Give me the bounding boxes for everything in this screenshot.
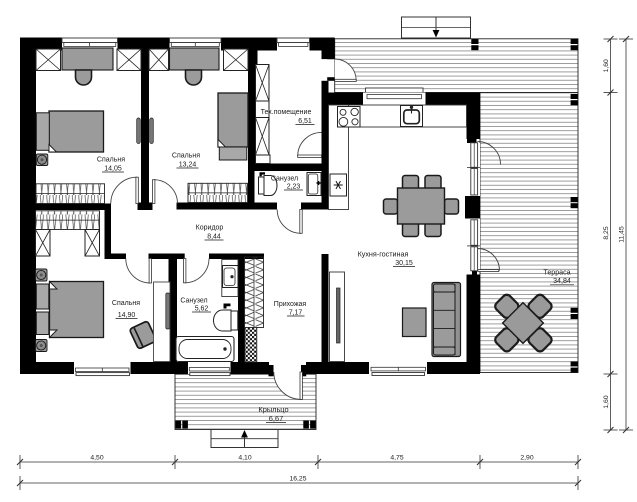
svg-text:7,17: 7,17 <box>289 310 303 317</box>
svg-text:Крыльцо: Крыльцо <box>258 405 288 414</box>
svg-text:Терраса: Терраса <box>543 269 570 277</box>
svg-text:14,90: 14,90 <box>118 312 136 319</box>
svg-text:16,25: 16,25 <box>289 476 306 483</box>
svg-text:34,84: 34,84 <box>553 277 571 285</box>
svg-text:1,60: 1,60 <box>603 59 610 72</box>
svg-text:11,45: 11,45 <box>619 226 626 243</box>
svg-text:8,44: 8,44 <box>207 234 221 241</box>
svg-text:4,50: 4,50 <box>90 455 103 462</box>
svg-text:2,23: 2,23 <box>287 184 301 191</box>
svg-text:4,75: 4,75 <box>390 455 403 462</box>
svg-text:Спальня: Спальня <box>172 152 200 159</box>
svg-text:2,90: 2,90 <box>520 455 533 462</box>
svg-text:Санузел: Санузел <box>180 297 207 304</box>
svg-text:6,67: 6,67 <box>269 414 283 423</box>
svg-text:1,60: 1,60 <box>603 395 610 408</box>
svg-text:13,24: 13,24 <box>179 162 197 169</box>
svg-text:6,51: 6,51 <box>298 118 312 125</box>
svg-text:4,10: 4,10 <box>238 455 251 462</box>
svg-text:5,62: 5,62 <box>195 306 209 313</box>
svg-text:Спальня: Спальня <box>97 156 125 163</box>
svg-text:8,25: 8,25 <box>603 226 610 239</box>
svg-text:14,05: 14,05 <box>104 166 122 173</box>
svg-text:Кухня-гостиная: Кухня-гостиная <box>358 249 409 258</box>
svg-text:Коридор: Коридор <box>196 224 224 231</box>
svg-text:Санузел: Санузел <box>271 175 298 182</box>
svg-text:Прихожая: Прихожая <box>274 301 307 308</box>
svg-text:Спальня: Спальня <box>112 300 140 307</box>
svg-text:30,15: 30,15 <box>395 260 413 267</box>
svg-text:Тех.помещение: Тех.помещение <box>261 109 312 116</box>
